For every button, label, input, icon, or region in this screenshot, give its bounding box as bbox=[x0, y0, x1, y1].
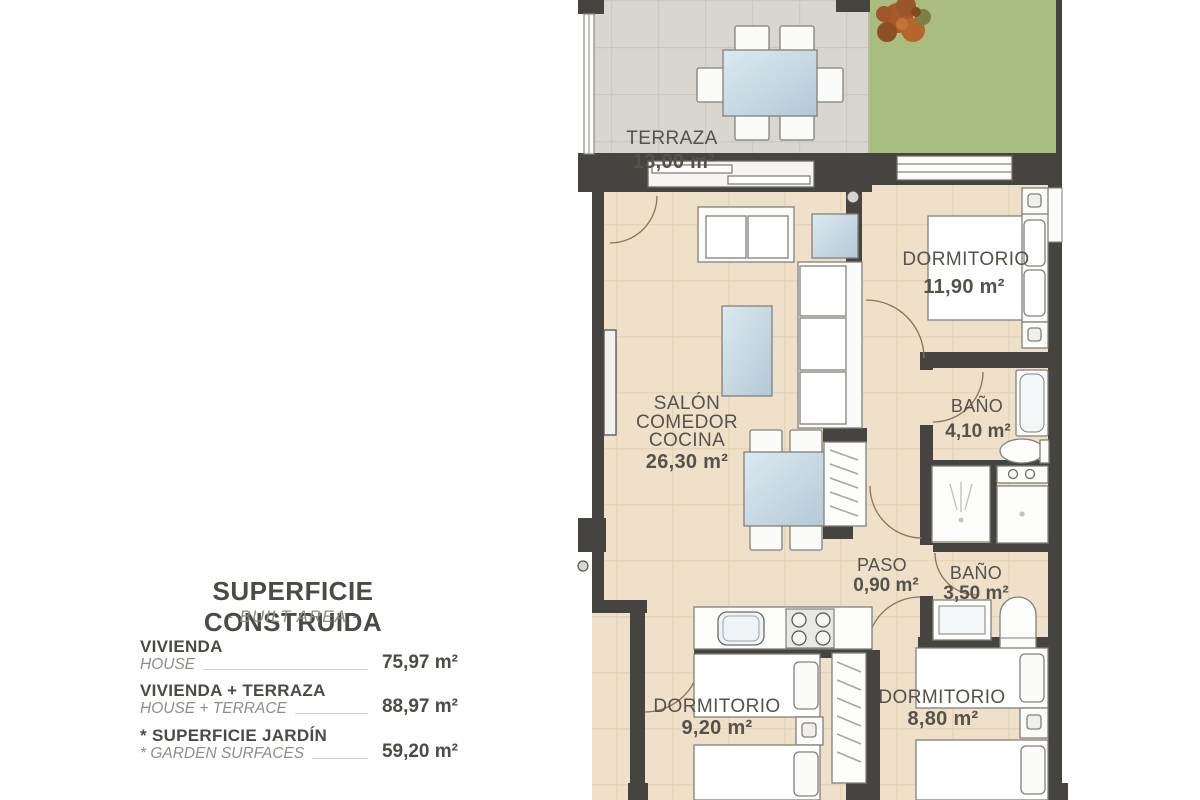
wall-utility-divider bbox=[990, 466, 997, 546]
label-bano2: BAÑO bbox=[950, 562, 1002, 583]
wardrobe bbox=[832, 653, 866, 783]
wall-right bbox=[1048, 153, 1062, 800]
floor-plan: TERRAZA 13,00 m² SALÓN COMEDOR COCINA 26… bbox=[0, 0, 1200, 800]
garden-border bbox=[1056, 0, 1062, 157]
wall-bath2-top bbox=[933, 543, 1062, 552]
pillow bbox=[794, 662, 818, 709]
terrace-table bbox=[723, 50, 817, 116]
label-terraza: TERRAZA bbox=[626, 128, 717, 149]
label-dormitorio2: DORMITORIO bbox=[653, 696, 780, 717]
column bbox=[578, 561, 588, 571]
legend-row-jardin: * SUPERFICIE JARDÍN * GARDEN SURFACES 59… bbox=[140, 726, 458, 764]
wall-pillar bbox=[578, 518, 606, 552]
bath2-fixtures bbox=[933, 597, 1036, 648]
label-dormitorio1-area: 11,90 m² bbox=[923, 276, 1004, 298]
chair bbox=[790, 524, 822, 550]
chair bbox=[750, 524, 782, 550]
pillow bbox=[1020, 654, 1044, 702]
legend-value: 88,97 m² bbox=[382, 696, 458, 718]
label-paso-area: 0,90 m² bbox=[853, 575, 918, 596]
utility-fixtures bbox=[932, 466, 1048, 543]
legend-value: 59,20 m² bbox=[382, 741, 458, 763]
sofa-cushion bbox=[706, 216, 746, 258]
label-salon-area: 26,30 m² bbox=[646, 451, 728, 473]
wall-stub bbox=[628, 783, 648, 800]
sofa-cushion bbox=[748, 216, 788, 258]
dining-table bbox=[744, 452, 826, 526]
wall-bath-column bbox=[920, 352, 933, 370]
legend-label-en: * GARDEN SURFACES bbox=[140, 745, 312, 762]
label-dormitorio2-area: 9,20 m² bbox=[681, 717, 752, 739]
bedroom1-window bbox=[897, 156, 1012, 180]
legend-row-vivienda-terraza: VIVIENDA + TERRAZA HOUSE + TERRACE 88,97… bbox=[140, 681, 458, 719]
pillow bbox=[1024, 270, 1045, 316]
legend-label-en: HOUSE bbox=[140, 656, 203, 673]
utility-counter bbox=[997, 466, 1048, 483]
pillow bbox=[794, 752, 818, 796]
label-salon-1: SALÓN bbox=[654, 392, 720, 414]
kitchen-sink bbox=[718, 612, 764, 645]
label-bano1-area: 4,10 m² bbox=[945, 421, 1010, 442]
toilet bbox=[1000, 439, 1044, 463]
label-dormitorio1: DORMITORIO bbox=[902, 249, 1029, 270]
wall-stub bbox=[1048, 783, 1068, 800]
hall-closet bbox=[824, 442, 866, 526]
label-salon-3: COCINA bbox=[649, 430, 725, 451]
wall-closet-top bbox=[823, 428, 867, 442]
legend-subtitle: - BUILT AREA - bbox=[128, 607, 458, 627]
chair bbox=[697, 68, 725, 102]
label-terraza-area: 13,00 m² bbox=[633, 151, 715, 173]
sofa-cushion bbox=[800, 372, 846, 424]
toilet bbox=[1000, 597, 1036, 648]
sofa-cushion bbox=[800, 266, 846, 316]
toilet-tank bbox=[1040, 440, 1049, 463]
label-paso: PASO bbox=[857, 555, 907, 575]
side-table bbox=[812, 214, 858, 258]
wall-closet-bottom bbox=[823, 525, 853, 539]
label-dormitorio3: DORMITORIO bbox=[878, 687, 1005, 708]
label-dormitorio3-area: 8,80 m² bbox=[907, 708, 978, 730]
legend-label-en: HOUSE + TERRACE bbox=[140, 700, 295, 717]
kitchen bbox=[694, 607, 872, 649]
chair bbox=[815, 68, 843, 102]
wall-bath-column bbox=[920, 425, 933, 545]
legend-value: 75,97 m² bbox=[382, 652, 458, 674]
column bbox=[847, 191, 859, 203]
label-bano2-area: 3,50 m² bbox=[943, 583, 1008, 604]
wall-bedroom2-left bbox=[630, 607, 645, 800]
wall-pillar bbox=[836, 0, 870, 12]
label-bano1: BAÑO bbox=[951, 395, 1003, 416]
wall-pillar bbox=[578, 0, 604, 14]
pillow bbox=[1021, 746, 1045, 794]
tv-unit bbox=[604, 330, 616, 435]
coffee-table bbox=[722, 306, 772, 396]
sofa-cushion bbox=[800, 318, 846, 370]
legend-row-vivienda: VIVIENDA HOUSE 75,97 m² bbox=[140, 637, 458, 675]
wall-bedroom1-bath bbox=[925, 352, 1062, 368]
wall-bedrooms-divider bbox=[866, 650, 880, 800]
floorplan-page: TERRAZA 13,00 m² SALÓN COMEDOR COCINA 26… bbox=[0, 0, 1200, 800]
